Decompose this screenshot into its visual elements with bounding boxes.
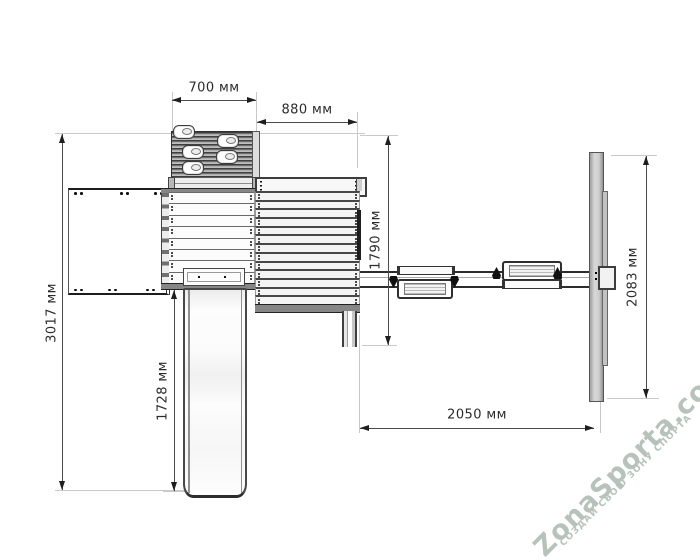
climbing-hold [217,134,239,148]
dim-line-2050 [360,428,594,429]
dim-label-880: 880 мм [282,103,333,118]
ladder-post [342,311,357,347]
dim-label-2083: 2083 мм [626,247,641,307]
arrowhead [348,119,357,125]
arrowhead [643,156,649,165]
climbing-hold [182,145,204,159]
arrowhead [257,119,266,125]
arrowhead [385,336,391,345]
extension-line-2050-right [600,402,601,433]
slide [183,288,247,498]
swing-seat [397,279,453,299]
dim-label-1728: 1728 мм [156,361,171,421]
playground-top-view-drawing: 700 мм 880 мм 3017 мм 1728 мм 1790 мм 20… [0,0,700,560]
extension-line-1790-top [360,135,398,136]
extension-line-700-right [256,92,257,133]
climbing-hold [216,150,238,164]
bolt-dots [595,272,597,274]
slide-entry-plate [183,268,245,286]
extension-line-2083-top [611,155,657,156]
dim-line-880 [257,122,357,123]
climbing-hold [182,161,204,175]
beam-connector [598,266,616,290]
arrowhead [247,97,256,103]
watermark-brand: ZonaSporta.com [528,378,700,560]
dim-line-1790 [388,136,389,345]
arrowhead [59,134,65,143]
extension-line-1790-bottom [362,345,397,346]
climbing-wall-post [252,131,260,180]
arrowhead [585,425,594,431]
extension-line-2083-bottom [607,398,659,399]
swing-plate [397,266,455,275]
platform-right-bracket [357,210,361,260]
arrowhead [172,97,181,103]
dim-label-2050: 2050 мм [447,408,507,423]
swing-seat [502,261,562,281]
dim-label-1790: 1790 мм [369,210,384,270]
sandbox-frame [68,188,170,295]
dim-label-700: 700 мм [189,81,240,96]
dim-line-1728 [174,290,175,491]
extension-line-880-right [357,112,358,168]
swing-plate [502,280,562,289]
arrowhead [643,389,649,398]
extension-line-2050-left [359,315,360,433]
platform-planks-central [255,192,360,305]
dim-line-3017 [62,134,63,490]
dim-line-2083 [646,156,647,398]
arrowhead [171,290,177,299]
arrowhead [385,136,391,145]
arrowhead [360,425,369,431]
dim-label-3017: 3017 мм [45,283,60,343]
balcony-rail-cap [356,179,362,191]
dim-line-700 [172,100,256,101]
climbing-hold [173,125,195,139]
swing-hanger [492,267,501,279]
arrowhead [171,482,177,491]
arrowhead [59,481,65,490]
platform-left-edge [161,193,169,284]
